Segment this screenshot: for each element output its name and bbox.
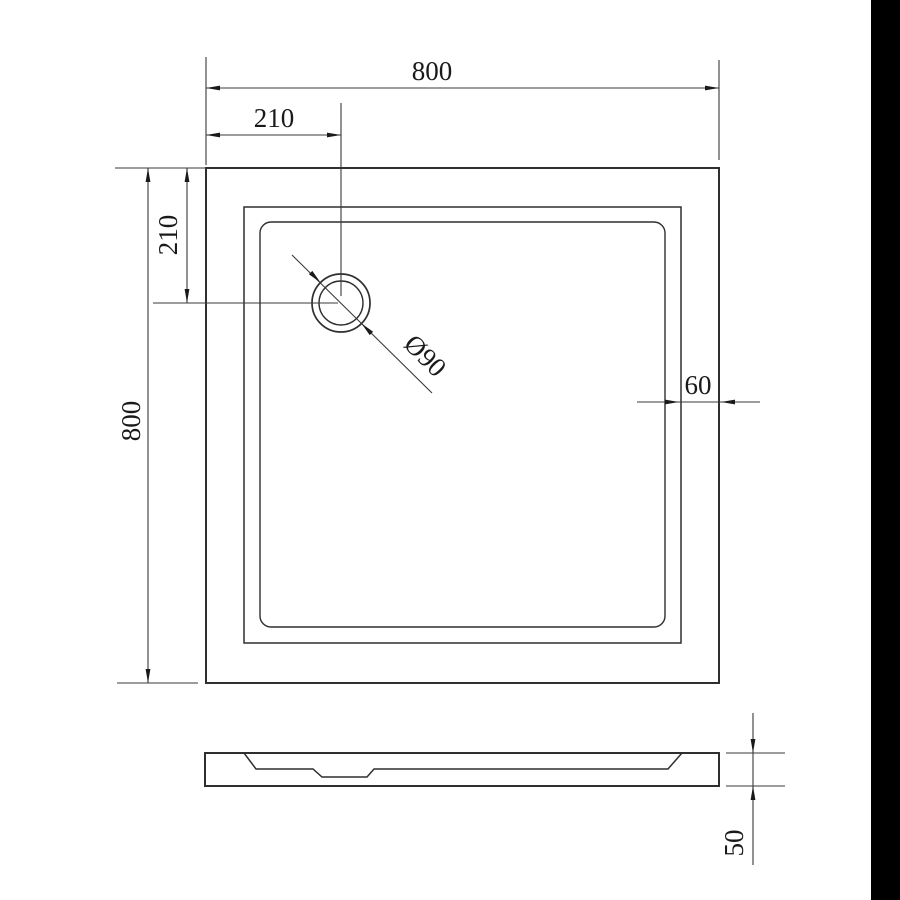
- dim-label-drain-offset-x: 210: [254, 103, 295, 133]
- dim-drain-offset-y: 210: [153, 168, 338, 303]
- dim-label-rim-width: 60: [685, 370, 712, 400]
- shower-tray-technical-drawing: 800 210 210 800: [0, 0, 900, 900]
- tray-outer-outline: [206, 168, 719, 683]
- arrowhead-up: [751, 786, 756, 800]
- drawing-svg: 800 210 210 800: [0, 0, 900, 900]
- arrowhead-upper: [309, 271, 321, 283]
- dim-label-drain-diameter: Ø90: [398, 329, 452, 383]
- arrowhead-bottom: [146, 669, 151, 683]
- top-view: [206, 168, 719, 683]
- arrowhead-right: [327, 133, 341, 138]
- dim-label-tray-height: 50: [719, 830, 749, 857]
- arrowhead-top: [185, 168, 190, 182]
- side-view: [205, 753, 719, 786]
- arrowhead-left: [206, 133, 220, 138]
- arrowhead-lower: [362, 324, 374, 336]
- side-view-basin-profile: [244, 753, 682, 777]
- arrowhead-pointing-right: [665, 400, 679, 405]
- arrowhead-left: [206, 86, 220, 91]
- dim-drain-diameter: Ø90: [292, 255, 452, 393]
- arrowhead-bottom: [185, 289, 190, 303]
- dim-label-overall-width: 800: [412, 56, 453, 86]
- arrowhead-down: [751, 739, 756, 753]
- dim-label-overall-depth: 800: [116, 401, 146, 442]
- arrowhead-right: [705, 86, 719, 91]
- dim-label-drain-offset-y: 210: [153, 215, 183, 256]
- dim-rim-width: 60: [637, 370, 760, 404]
- right-edge-black-band: [871, 0, 900, 900]
- dim-drain-offset-x: 210: [206, 103, 341, 296]
- arrowhead-pointing-left: [721, 400, 735, 405]
- dim-tray-height: 50: [719, 713, 785, 865]
- arrowhead-top: [146, 168, 151, 182]
